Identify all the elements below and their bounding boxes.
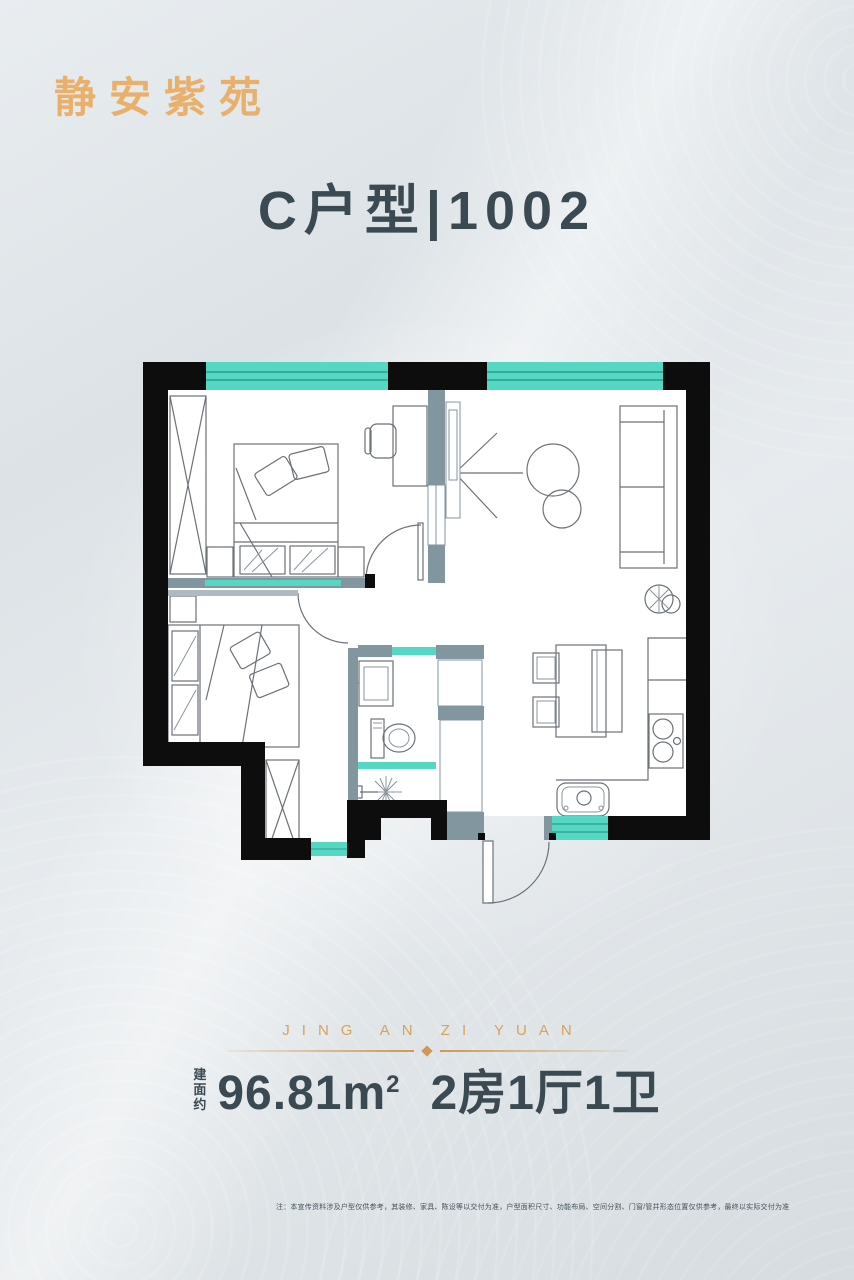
- brand-en-text: JING AN ZI YUAN: [0, 1022, 854, 1039]
- area-prefix: 建面约: [193, 1068, 208, 1118]
- diamond-icon: [421, 1045, 432, 1056]
- divider-line-right: [440, 1050, 628, 1052]
- room-config: 2房1厅1卫: [431, 1070, 661, 1118]
- divider-line-left: [226, 1050, 414, 1052]
- area-value: 96.81m2: [217, 1070, 400, 1118]
- floorplan-poster: 静安紫苑 C户型|1002: [0, 0, 854, 1280]
- entry-door-arc: [483, 841, 549, 903]
- area-unit: m: [342, 1067, 386, 1120]
- gold-divider: [0, 1046, 854, 1056]
- area-info: 建面约 96.81m2 2房1厅1卫: [0, 1068, 854, 1118]
- disclaimer-note: 注：本宣传资料涉及户型仅供参考，其装修、家具、陈设等以交付为准，户型面积尺寸、功…: [276, 1202, 789, 1212]
